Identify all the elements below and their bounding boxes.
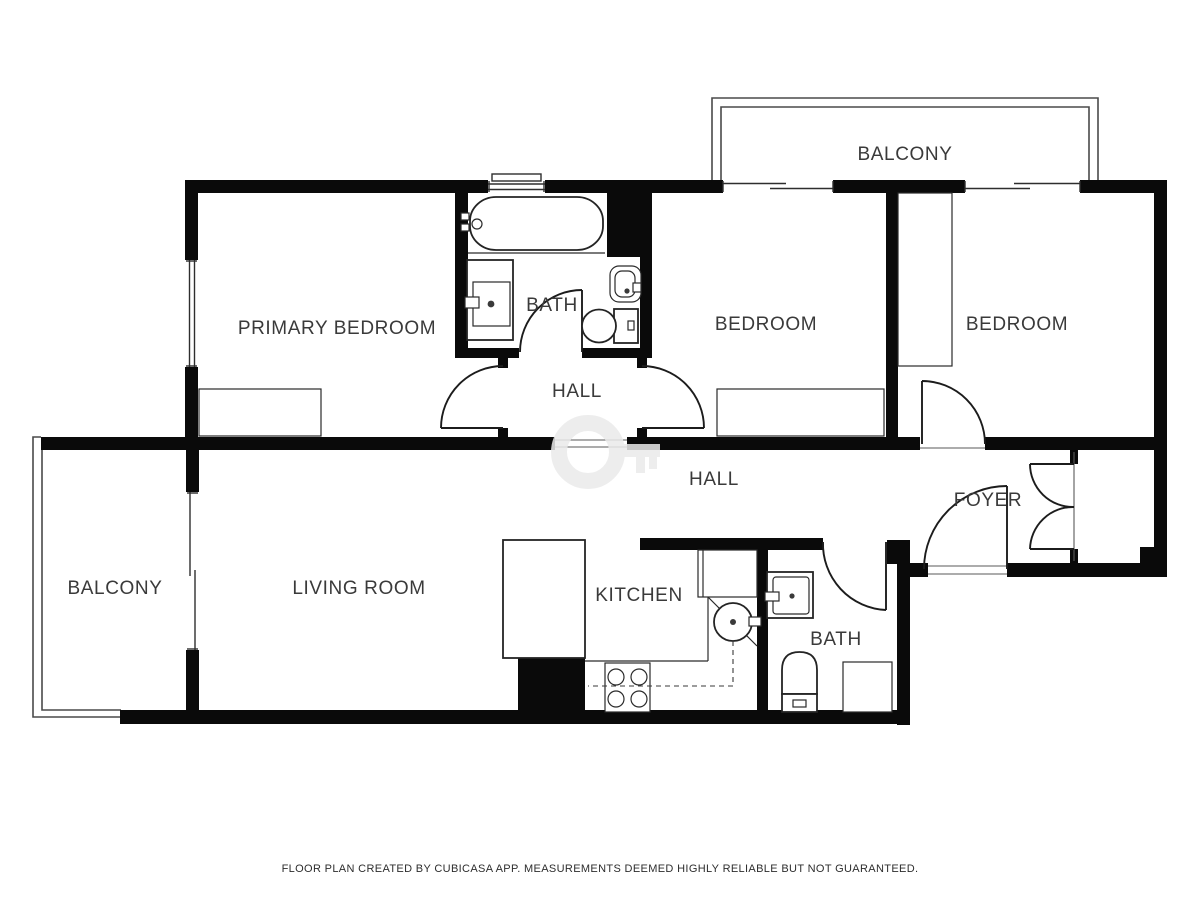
stove: [605, 663, 650, 712]
wall-segment: [455, 348, 519, 358]
room-label-foyer: FOYER: [954, 490, 1022, 511]
closet: [898, 193, 952, 366]
wall-segment: [985, 437, 1167, 450]
kitchen-sink: [714, 603, 761, 641]
bed: [717, 389, 884, 436]
shower: [843, 662, 892, 712]
room-label-kitchen: KITCHEN: [595, 585, 683, 606]
sliding-window: [186, 492, 199, 650]
door-bedroom2: [642, 366, 704, 428]
room-label-hall-upper: HALL: [552, 381, 602, 402]
door-bath2: [823, 542, 886, 610]
fridge: [503, 540, 585, 658]
wall-segment: [640, 538, 823, 550]
room-label-hall-lower: HALL: [689, 469, 739, 490]
wall-segment: [637, 428, 647, 439]
wall-segment: [498, 428, 508, 439]
wall-segment: [455, 180, 468, 358]
wall-segment: [41, 437, 200, 450]
floor-plan-page: BALCONY PRIMARY BEDROOM BATH BEDROOM BED…: [0, 0, 1200, 900]
balcony-railing-outer: [712, 98, 1098, 180]
window: [185, 260, 198, 367]
balcony-railing-outer: [33, 437, 121, 717]
wall-segment: [545, 180, 723, 193]
toilet: [582, 309, 638, 343]
door-foyer-closet-bifold: [1030, 464, 1074, 549]
door-primary-bedroom: [441, 366, 503, 428]
room-label-balcony-top: BALCONY: [857, 144, 952, 165]
room-label-primary-bedroom: PRIMARY BEDROOM: [238, 318, 436, 339]
wall-segment: [185, 180, 198, 260]
wall-segment: [887, 540, 910, 564]
vanity-sink: [765, 572, 813, 618]
wall-segment: [897, 563, 910, 725]
floor-plan-svg: BALCONY PRIMARY BEDROOM BATH BEDROOM BED…: [0, 0, 1200, 900]
wall-segment: [186, 650, 199, 712]
sliding-window: [723, 180, 833, 193]
window: [488, 174, 545, 193]
wall-segment: [1154, 180, 1167, 577]
door-bedroom3: [922, 381, 985, 444]
wall-segment: [833, 180, 965, 193]
wall-segment: [1140, 547, 1156, 563]
balcony-top-railing: [712, 98, 1098, 180]
bed: [199, 389, 321, 436]
kitchen-column: [518, 658, 585, 710]
room-label-bath1: BATH: [526, 295, 578, 316]
balcony-left-railing: [33, 437, 121, 717]
room-label-bedroom2: BEDROOM: [715, 314, 817, 335]
walls: [41, 180, 1167, 725]
wall-segment: [607, 193, 652, 257]
wall-segment: [1080, 180, 1167, 193]
room-label-balcony-left: BALCONY: [67, 578, 162, 599]
room-label-bedroom3: BEDROOM: [966, 314, 1068, 335]
wall-segment: [185, 180, 488, 193]
wall-segment: [186, 450, 199, 492]
room-label-bath2: BATH: [810, 629, 862, 650]
bathtub: [461, 197, 603, 250]
sliding-window: [965, 180, 1080, 193]
toilet: [782, 652, 817, 712]
wall-segment: [886, 193, 898, 437]
disclaimer-text: FLOOR PLAN CREATED BY CUBICASA APP. MEAS…: [282, 863, 919, 875]
hand-sink: [610, 266, 641, 302]
wall-segment: [1007, 563, 1167, 577]
wall-segment: [627, 437, 920, 450]
room-label-living-room: LIVING ROOM: [292, 578, 425, 599]
vanity-sink: [465, 260, 513, 340]
